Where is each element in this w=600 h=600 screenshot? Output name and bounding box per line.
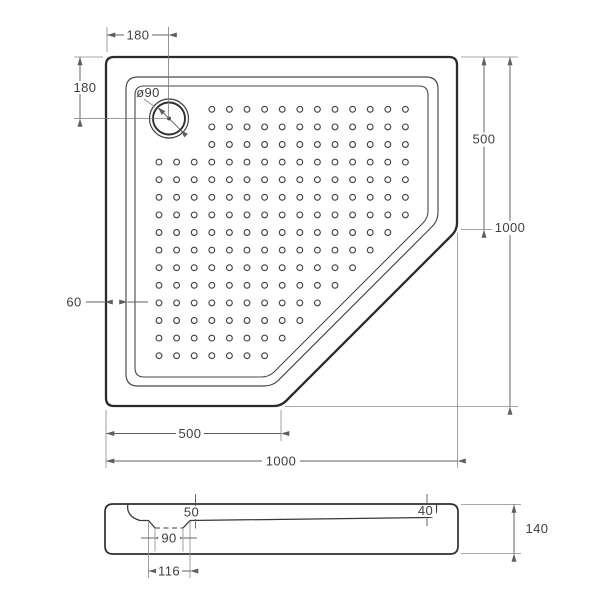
dim-depth-40: 40: [415, 494, 436, 526]
anti-slip-dot: [227, 142, 233, 148]
dim-label-bottom-1000: 1000: [266, 454, 297, 469]
anti-slip-dot: [227, 177, 233, 183]
anti-slip-dot: [332, 159, 338, 165]
anti-slip-dot: [315, 282, 321, 288]
anti-slip-dot: [244, 177, 250, 183]
anti-slip-dot: [385, 194, 391, 200]
anti-slip-dot: [297, 177, 303, 183]
anti-slip-dot: [332, 124, 338, 130]
anti-slip-dot: [315, 124, 321, 130]
anti-slip-dot: [403, 159, 409, 165]
anti-slip-dot: [297, 124, 303, 130]
dim-drain-offset-left: 180: [107, 27, 169, 52]
anti-slip-dot: [156, 247, 162, 253]
anti-slip-dot: [174, 230, 180, 236]
anti-slip-dot: [262, 318, 268, 324]
anti-slip-dot: [279, 142, 285, 148]
anti-slip-dot: [262, 177, 268, 183]
anti-slip-dot: [209, 106, 215, 112]
anti-slip-dot: [279, 159, 285, 165]
anti-slip-dot: [332, 142, 338, 148]
anti-slip-dot: [297, 318, 303, 324]
anti-slip-dot: [156, 177, 162, 183]
anti-slip-dot: [209, 230, 215, 236]
anti-slip-dot: [403, 142, 409, 148]
anti-slip-dot: [156, 265, 162, 271]
anti-slip-dot: [174, 212, 180, 218]
section-basin-floor: [128, 504, 155, 528]
anti-slip-dot: [332, 194, 338, 200]
anti-slip-dot: [385, 177, 391, 183]
anti-slip-dot: [244, 300, 250, 306]
anti-slip-dot: [279, 300, 285, 306]
tray-outline: [106, 57, 457, 406]
anti-slip-dot: [191, 353, 197, 359]
anti-slip-dot: [279, 194, 285, 200]
anti-slip-dot: [403, 106, 409, 112]
anti-slip-dot: [244, 353, 250, 359]
anti-slip-dot: [244, 142, 250, 148]
dim-label-depth-40: 40: [418, 503, 433, 518]
anti-slip-dot: [350, 159, 356, 165]
anti-slip-dot: [227, 335, 233, 341]
anti-slip-dot: [297, 282, 303, 288]
anti-slip-dot: [332, 106, 338, 112]
anti-slip-dot: [367, 142, 373, 148]
anti-slip-dot: [244, 318, 250, 324]
dim-drain-offset-top: 180: [71, 57, 103, 119]
anti-slip-dot: [174, 177, 180, 183]
dim-label-hole-90: 90: [161, 531, 176, 546]
anti-slip-dot: [385, 124, 391, 130]
anti-slip-dot: [385, 212, 391, 218]
anti-slip-dot: [227, 106, 233, 112]
anti-slip-dot: [279, 265, 285, 271]
anti-slip-dot: [227, 353, 233, 359]
anti-slip-dot: [403, 124, 409, 130]
anti-slip-dot: [262, 142, 268, 148]
anti-slip-dot: [332, 265, 338, 271]
anti-slip-dot: [315, 177, 321, 183]
anti-slip-dot: [367, 247, 373, 253]
anti-slip-dot: [279, 282, 285, 288]
anti-slip-dot: [209, 247, 215, 253]
anti-slip-dot: [315, 159, 321, 165]
top-view: 180 180 ø90 500 1000: [66, 27, 529, 469]
anti-slip-dot: [227, 265, 233, 271]
anti-slip-dot: [244, 282, 250, 288]
anti-slip-dot: [315, 265, 321, 271]
anti-slip-dot: [191, 159, 197, 165]
dim-label-top-180: 180: [127, 28, 150, 43]
anti-slip-dot: [315, 247, 321, 253]
anti-slip-dot: [209, 300, 215, 306]
anti-slip-dot: [174, 159, 180, 165]
anti-slip-dot: [209, 335, 215, 341]
dim-label-depth-50: 50: [184, 505, 199, 520]
anti-slip-dot: [279, 106, 285, 112]
anti-slip-dot: [244, 212, 250, 218]
anti-slip-dot: [367, 194, 373, 200]
anti-slip-dot: [297, 194, 303, 200]
anti-slip-dot: [156, 230, 162, 236]
dim-right-straight-500: 500: [461, 57, 518, 230]
dim-depth-50: 50: [181, 494, 202, 529]
anti-slip-dot: [403, 177, 409, 183]
section-basin-floor-right: [183, 504, 437, 528]
anti-slip-dot: [244, 194, 250, 200]
anti-slip-dot: [367, 230, 373, 236]
anti-slip-dot: [227, 247, 233, 253]
anti-slip-dot: [244, 124, 250, 130]
anti-slip-dot: [279, 318, 285, 324]
anti-slip-dot: [279, 124, 285, 130]
anti-slip-dot: [262, 353, 268, 359]
anti-slip-dot: [403, 194, 409, 200]
dim-drain-hole-90: 90: [141, 531, 197, 546]
anti-slip-dot: [279, 335, 285, 341]
anti-slip-dot: [209, 177, 215, 183]
anti-slip-dot: [191, 335, 197, 341]
anti-slip-dot: [262, 265, 268, 271]
anti-slip-dot: [191, 300, 197, 306]
anti-slip-dot: [262, 282, 268, 288]
anti-slip-dot: [244, 265, 250, 271]
anti-slip-dot: [227, 212, 233, 218]
anti-slip-dot: [174, 335, 180, 341]
anti-slip-dot: [209, 212, 215, 218]
anti-slip-dot: [297, 159, 303, 165]
anti-slip-dot: [174, 318, 180, 324]
drain-label-leader: [144, 99, 155, 107]
anti-slip-dot: [209, 194, 215, 200]
anti-slip-dot: [332, 212, 338, 218]
dim-bottom-straight-500: 500: [106, 410, 281, 441]
anti-slip-dot: [262, 124, 268, 130]
anti-slip-dot: [385, 159, 391, 165]
anti-slip-dot: [262, 335, 268, 341]
anti-slip-dot: [244, 106, 250, 112]
dim-label-right-500: 500: [473, 132, 496, 147]
anti-slip-dot: [279, 247, 285, 253]
drawing-sheet: 180 180 ø90 500 1000: [0, 0, 600, 600]
anti-slip-dot: [156, 159, 162, 165]
anti-slip-dot: [227, 194, 233, 200]
anti-slip-dot: [350, 177, 356, 183]
anti-slip-dot: [191, 230, 197, 236]
anti-slip-dot: [262, 247, 268, 253]
anti-slip-dot: [191, 247, 197, 253]
anti-slip-dot: [156, 353, 162, 359]
dim-label-right-1000: 1000: [495, 220, 526, 235]
anti-slip-dot: [350, 265, 356, 271]
dim-label-drain-diameter: ø90: [136, 85, 160, 100]
anti-slip-dot: [350, 230, 356, 236]
anti-slip-dot: [350, 212, 356, 218]
anti-slip-dot: [297, 142, 303, 148]
anti-slip-dot: [332, 282, 338, 288]
anti-slip-dot: [297, 106, 303, 112]
anti-slip-dot: [297, 265, 303, 271]
dim-rim-width-60: 60: [66, 295, 148, 310]
dim-label-rim-60: 60: [66, 295, 81, 310]
anti-slip-dot: [315, 230, 321, 236]
anti-slip-dot: [156, 194, 162, 200]
dim-right-overall-1000: 1000: [285, 57, 529, 407]
anti-slip-dot: [244, 159, 250, 165]
anti-slip-dot: [174, 247, 180, 253]
anti-slip-dot: [227, 300, 233, 306]
anti-slip-dot: [156, 282, 162, 288]
technical-drawing-svg: 180 180 ø90 500 1000: [0, 0, 600, 600]
anti-slip-dot: [367, 212, 373, 218]
anti-slip-dot: [156, 212, 162, 218]
dim-label-height-140: 140: [526, 521, 549, 536]
anti-slip-dot: [174, 282, 180, 288]
anti-slip-dot: [315, 212, 321, 218]
anti-slip-dot: [156, 335, 162, 341]
anti-slip-dot: [385, 230, 391, 236]
anti-slip-dot: [244, 335, 250, 341]
anti-slip-dot: [209, 318, 215, 324]
dim-label-left-180: 180: [74, 80, 97, 95]
anti-slip-dot: [367, 177, 373, 183]
anti-slip-dot: [385, 142, 391, 148]
anti-slip-dot: [191, 212, 197, 218]
anti-slip-dot: [332, 230, 338, 236]
anti-slip-dot: [174, 353, 180, 359]
anti-slip-dot: [174, 194, 180, 200]
anti-slip-dot: [191, 265, 197, 271]
anti-slip-dot: [350, 124, 356, 130]
anti-slip-dot: [156, 300, 162, 306]
anti-slip-dot: [315, 142, 321, 148]
anti-slip-dot: [262, 300, 268, 306]
anti-slip-dot: [385, 106, 391, 112]
anti-slip-dot: [297, 300, 303, 306]
anti-slip-dot: [262, 212, 268, 218]
anti-slip-dot: [191, 177, 197, 183]
section-view: 50 40 90 116 140: [105, 494, 548, 579]
anti-slip-dot: [209, 124, 215, 130]
anti-slip-dot: [297, 230, 303, 236]
anti-slip-dot: [350, 194, 356, 200]
anti-slip-dot: [403, 212, 409, 218]
anti-slip-dot: [227, 230, 233, 236]
anti-slip-dot: [315, 300, 321, 306]
anti-slip-dot: [279, 177, 285, 183]
dim-label-recess-116: 116: [158, 564, 180, 579]
anti-slip-dot: [367, 159, 373, 165]
anti-slip-dot: [156, 318, 162, 324]
anti-slip-dot: [350, 247, 356, 253]
anti-slip-dot: [367, 124, 373, 130]
anti-slip-dot: [315, 194, 321, 200]
anti-slip-dot: [262, 159, 268, 165]
anti-slip-dot: [209, 159, 215, 165]
anti-slip-dot: [191, 282, 197, 288]
anti-slip-dot: [262, 106, 268, 112]
section-body-outline: [105, 504, 458, 554]
anti-slip-dot: [227, 318, 233, 324]
anti-slip-dot: [350, 106, 356, 112]
anti-slip-dot: [244, 230, 250, 236]
anti-slip-dot: [174, 265, 180, 271]
anti-slip-dot: [227, 282, 233, 288]
anti-slip-dots: [156, 106, 408, 358]
anti-slip-dot: [367, 106, 373, 112]
anti-slip-dot: [209, 353, 215, 359]
anti-slip-dot: [209, 265, 215, 271]
anti-slip-dot: [350, 142, 356, 148]
dim-label-bottom-500: 500: [179, 426, 202, 441]
anti-slip-dot: [227, 124, 233, 130]
anti-slip-dot: [209, 142, 215, 148]
anti-slip-dot: [279, 230, 285, 236]
anti-slip-dot: [209, 282, 215, 288]
anti-slip-dot: [244, 247, 250, 253]
anti-slip-dot: [332, 247, 338, 253]
anti-slip-dot: [262, 230, 268, 236]
rim-inner-edge: [126, 77, 438, 386]
anti-slip-dot: [191, 318, 197, 324]
anti-slip-dot: [332, 177, 338, 183]
anti-slip-dot: [297, 212, 303, 218]
anti-slip-dot: [279, 212, 285, 218]
anti-slip-dot: [191, 194, 197, 200]
dim-section-height-140: 140: [461, 505, 548, 554]
anti-slip-dot: [227, 159, 233, 165]
anti-slip-dot: [262, 194, 268, 200]
anti-slip-dot: [174, 300, 180, 306]
anti-slip-dot: [297, 247, 303, 253]
dim-drain-recess-116: 116: [149, 564, 191, 579]
anti-slip-dot: [315, 106, 321, 112]
